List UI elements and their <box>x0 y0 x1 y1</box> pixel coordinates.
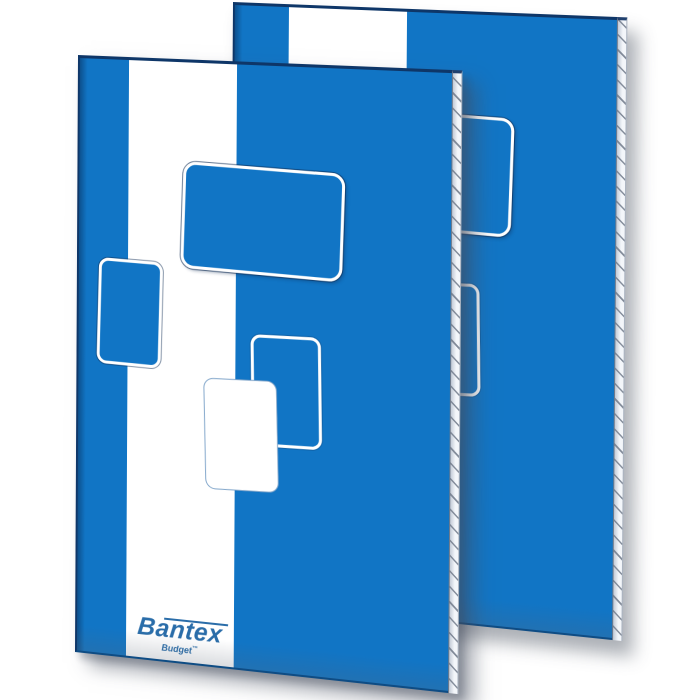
design-rect-large <box>180 161 345 283</box>
notebook-front-cover: Bantex Budget™ <box>75 55 452 693</box>
trademark-symbol: ™ <box>192 646 198 653</box>
design-rect-white <box>203 377 279 493</box>
notebook-front: Bantex Budget™ <box>75 55 462 694</box>
product-photo-scene: Bantex Budget™ Bantex Budget™ <box>0 0 700 700</box>
design-rect-small-left <box>97 257 164 369</box>
